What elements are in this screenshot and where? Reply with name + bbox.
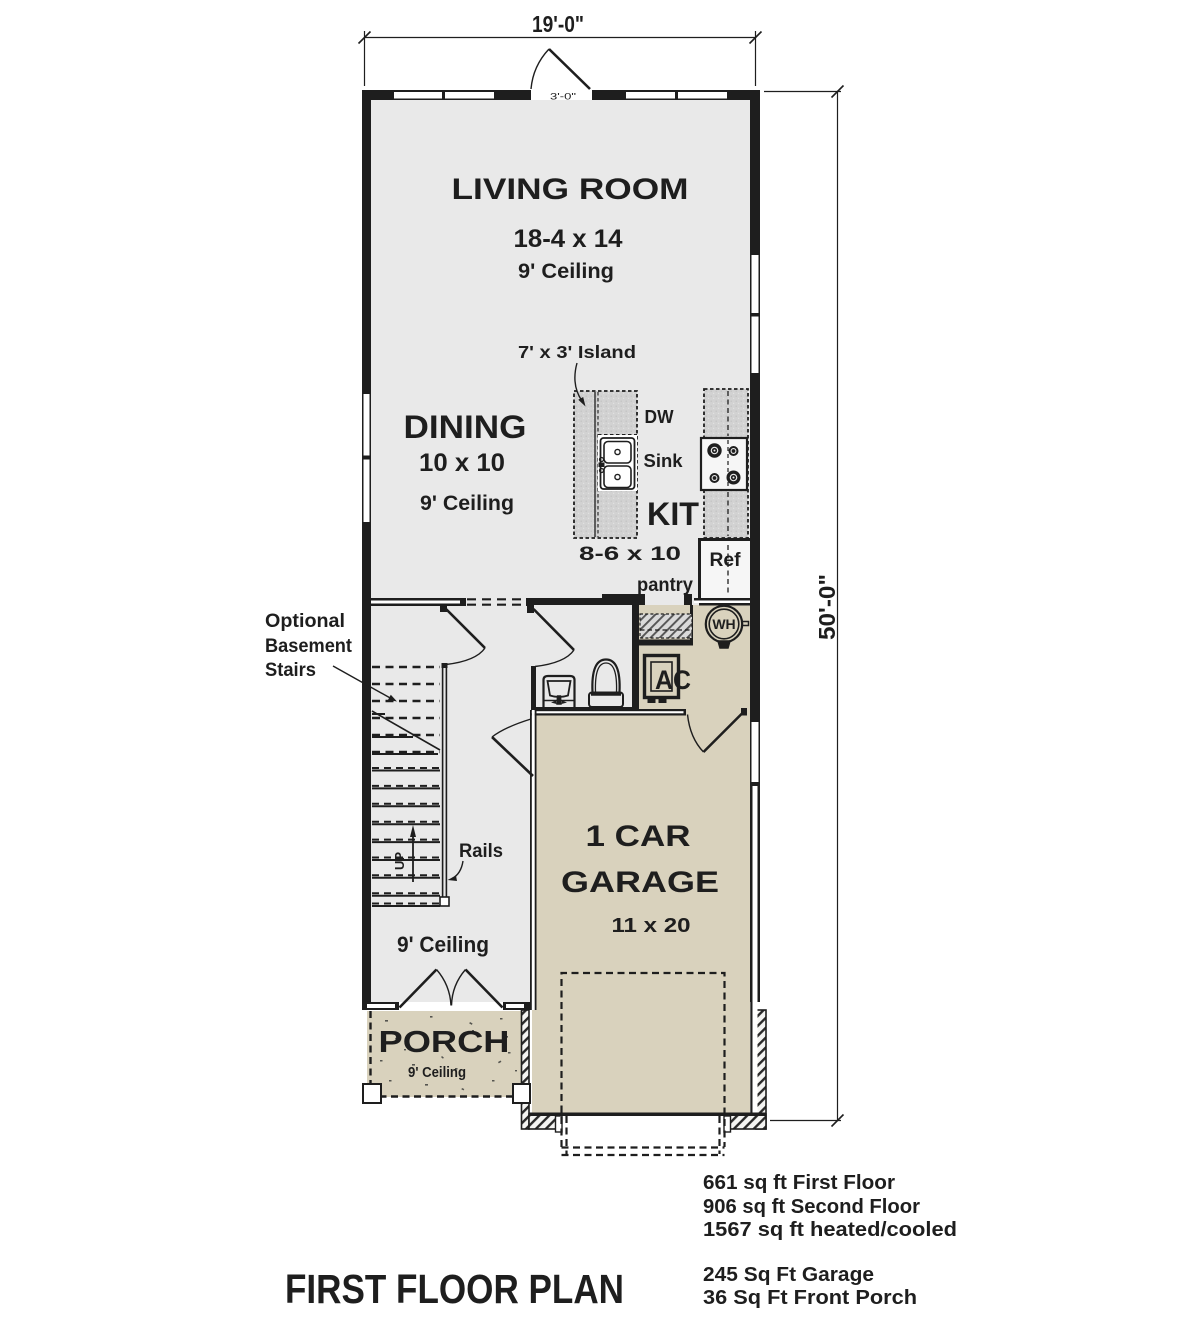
svg-text:1 CAR: 1 CAR [586,820,691,853]
svg-text:AC: AC [655,665,691,695]
svg-text:Rails: Rails [459,841,503,862]
svg-text:UP: UP [392,852,407,870]
svg-text:8-6 x 10: 8-6 x 10 [579,544,681,565]
svg-text:Basement: Basement [265,636,353,657]
svg-text:Stairs: Stairs [265,660,316,681]
svg-text:7' x 3' Island: 7' x 3' Island [518,342,636,362]
svg-text:Ref: Ref [710,550,742,571]
svg-text:Sink: Sink [644,451,684,471]
svg-text:10 x 10: 10 x 10 [419,449,505,477]
svg-text:WH: WH [712,616,735,632]
svg-text:11 x 20: 11 x 20 [612,915,691,937]
svg-text:DINING: DINING [404,409,527,445]
svg-text:Optional: Optional [265,611,345,632]
svg-text:19'-0": 19'-0" [532,11,584,37]
svg-text:906 sq ft Second Floor: 906 sq ft Second Floor [703,1196,920,1218]
svg-text:DW: DW [645,407,674,427]
svg-text:FIRST FLOOR PLAN: FIRST FLOOR PLAN [285,1266,624,1312]
svg-text:3'-0": 3'-0" [550,92,576,103]
svg-text:36 Sq Ft Front Porch: 36 Sq Ft Front Porch [703,1287,917,1309]
svg-text:661 sq ft First Floor: 661 sq ft First Floor [703,1172,895,1194]
svg-text:9' Ceiling: 9' Ceiling [408,1065,466,1081]
svg-text:50'-0": 50'-0" [814,574,840,640]
svg-text:1567 sq ft heated/cooled: 1567 sq ft heated/cooled [703,1219,957,1241]
svg-text:GARAGE: GARAGE [561,866,719,899]
svg-text:9' Ceiling: 9' Ceiling [397,932,489,957]
svg-text:pantry: pantry [637,575,693,596]
svg-text:245 Sq Ft Garage: 245 Sq Ft Garage [703,1264,874,1286]
svg-text:9' Ceiling: 9' Ceiling [420,492,514,515]
svg-text:KIT: KIT [647,496,699,532]
svg-text:PORCH: PORCH [379,1024,510,1059]
svg-text:9' Ceiling: 9' Ceiling [518,260,614,283]
svg-text:18-4 x 14: 18-4 x 14 [514,225,623,253]
svg-text:LIVING ROOM: LIVING ROOM [452,173,689,206]
